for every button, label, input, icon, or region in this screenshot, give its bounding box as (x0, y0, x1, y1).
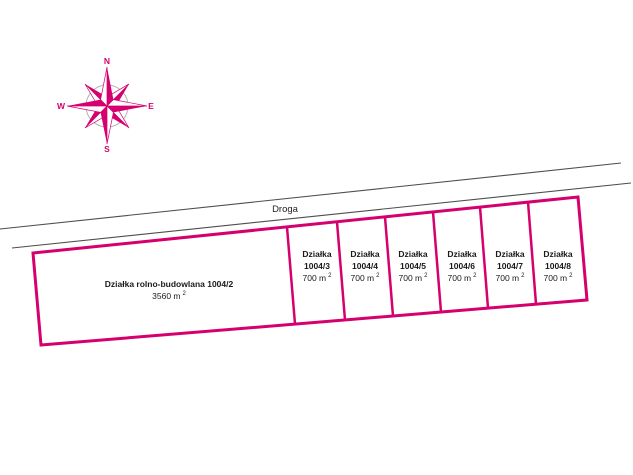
compass-label-east: E (148, 101, 154, 111)
main-plot-title: Działka rolno-budowlana 1004/2 (105, 279, 234, 289)
parcels-outline (33, 197, 587, 345)
compass-point-east (107, 100, 147, 113)
plot-1004-8-label: Działka 1004/8 700 m2 (543, 249, 573, 283)
road-label: Droga (272, 204, 299, 215)
plot-1004-4-label: Działka 1004/4 700 m2 (350, 249, 380, 283)
compass-label-west: W (57, 101, 66, 111)
land-plot-plan: N E S W Droga Działka rolno-budowlana 10… (0, 0, 633, 475)
compass-rose: N E S W (57, 56, 154, 154)
plot-area-value: 700 m (448, 273, 472, 283)
plot-label-number: 1004/5 (400, 261, 426, 271)
plot-label-number: 1004/7 (497, 261, 523, 271)
plot-label-number: 1004/6 (449, 261, 475, 271)
plot-area-value: 700 m (544, 273, 568, 283)
plot-label-number: 1004/8 (545, 261, 571, 271)
plot-area-value: 700 m (496, 273, 520, 283)
plot-1004-7-label: Działka 1004/7 700 m2 (495, 249, 525, 283)
plot-label-name: Działka (302, 249, 332, 259)
plot-label-name: Działka (398, 249, 428, 259)
compass-label-south: S (104, 144, 110, 154)
compass-point-west (67, 100, 107, 113)
plot-1004-5-label: Działka 1004/5 700 m2 (398, 249, 428, 283)
parcels (33, 197, 587, 345)
plot-area-value: 700 m (303, 273, 327, 283)
plot-label-name: Działka (447, 249, 477, 259)
plot-label-number: 1004/3 (304, 261, 330, 271)
plot-1004-6-label: Działka 1004/6 700 m2 (447, 249, 477, 283)
plot-label-name: Działka (350, 249, 380, 259)
plot-area-value: 700 m (399, 273, 423, 283)
compass-point-south (101, 106, 114, 144)
plot-label-name: Działka (495, 249, 525, 259)
plot-1004-3-label: Działka 1004/3 700 m2 (302, 249, 332, 283)
compass-label-north: N (104, 56, 110, 66)
plot-area-value: 700 m (351, 273, 375, 283)
plot-label-number: 1004/4 (352, 261, 378, 271)
plot-label-name: Działka (543, 249, 573, 259)
compass-point-north (101, 67, 114, 106)
main-plot-area-value: 3560 m (152, 291, 180, 301)
plot-map-svg: N E S W Droga Działka rolno-budowlana 10… (0, 0, 633, 475)
